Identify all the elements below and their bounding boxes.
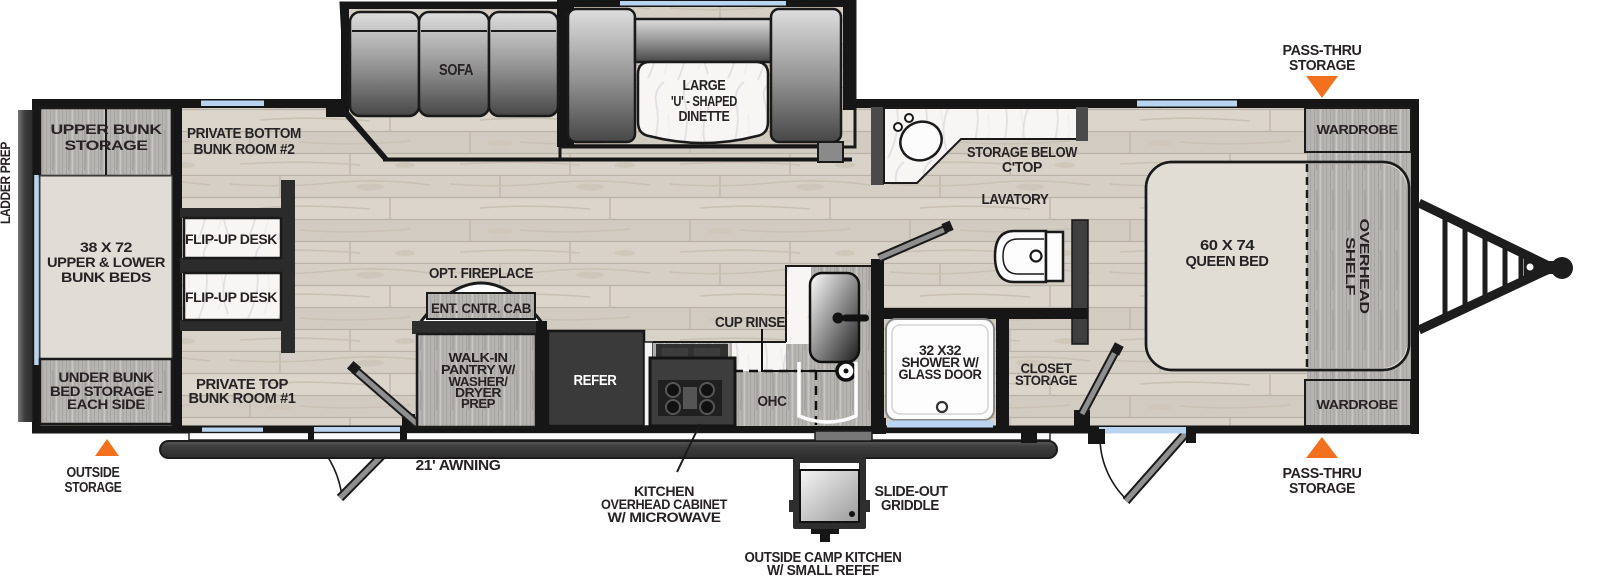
- svg-text:FLIP-UP DESK: FLIP-UP DESK: [185, 232, 278, 247]
- svg-text:OUTSIDE: OUTSIDE: [67, 465, 121, 481]
- svg-text:WARDROBE: WARDROBE: [1317, 122, 1399, 137]
- svg-text:UPPER & LOWER: UPPER & LOWER: [47, 254, 165, 270]
- svg-text:LARGE: LARGE: [683, 77, 726, 94]
- svg-text:DINETTE: DINETTE: [679, 108, 730, 125]
- svg-text:PASS-THRU: PASS-THRU: [1283, 466, 1362, 482]
- svg-text:SOFA: SOFA: [439, 62, 474, 79]
- svg-text:21' AWNING: 21' AWNING: [416, 457, 501, 474]
- svg-text:STORAGE: STORAGE: [65, 480, 123, 496]
- svg-text:STORAGE: STORAGE: [1289, 481, 1356, 497]
- svg-text:UPPER BUNK: UPPER BUNK: [51, 121, 162, 137]
- svg-text:BUNK ROOM #2: BUNK ROOM #2: [194, 142, 295, 158]
- svg-text:C'TOP: C'TOP: [1002, 160, 1043, 176]
- svg-text:PRIVATE BOTTOM: PRIVATE BOTTOM: [187, 126, 301, 142]
- svg-text:EACH SIDE: EACH SIDE: [67, 396, 145, 412]
- svg-text:STORAGE BELOW: STORAGE BELOW: [967, 145, 1078, 161]
- svg-text:LADDER PREP: LADDER PREP: [0, 142, 13, 224]
- svg-text:STORAGE: STORAGE: [1289, 58, 1356, 74]
- svg-text:LAVATORY: LAVATORY: [982, 192, 1050, 208]
- svg-text:BUNK BEDS: BUNK BEDS: [61, 269, 151, 285]
- svg-text:PASS-THRU: PASS-THRU: [1283, 43, 1362, 59]
- svg-text:OPT. FIREPLACE: OPT. FIREPLACE: [429, 266, 534, 282]
- svg-text:60 X 74: 60 X 74: [1200, 238, 1254, 254]
- svg-text:CUP RINSE: CUP RINSE: [715, 315, 786, 331]
- svg-text:W/ SMALL REFEF: W/ SMALL REFEF: [767, 563, 880, 577]
- svg-text:W/ MICROWAVE: W/ MICROWAVE: [608, 509, 721, 525]
- svg-text:FLIP-UP DESK: FLIP-UP DESK: [185, 290, 278, 305]
- svg-text:ENT. CNTR. CAB: ENT. CNTR. CAB: [431, 301, 532, 316]
- svg-text:GLASS DOOR: GLASS DOOR: [899, 367, 983, 382]
- svg-text:WARDROBE: WARDROBE: [1317, 397, 1399, 412]
- svg-text:38 X 72: 38 X 72: [80, 239, 133, 255]
- svg-text:OHC: OHC: [758, 394, 788, 410]
- svg-text:QUEEN BED: QUEEN BED: [1186, 254, 1269, 270]
- svg-text:BUNK ROOM #1: BUNK ROOM #1: [189, 391, 296, 407]
- svg-text:GRIDDLE: GRIDDLE: [881, 498, 940, 514]
- svg-text:STORAGE: STORAGE: [1015, 373, 1077, 388]
- svg-text:PREP: PREP: [461, 397, 495, 411]
- svg-text:OVERHEAD: OVERHEAD: [1357, 219, 1372, 314]
- svg-text:REFER: REFER: [574, 373, 618, 389]
- svg-text:STORAGE: STORAGE: [65, 137, 148, 153]
- svg-text:SHELF: SHELF: [1343, 237, 1358, 296]
